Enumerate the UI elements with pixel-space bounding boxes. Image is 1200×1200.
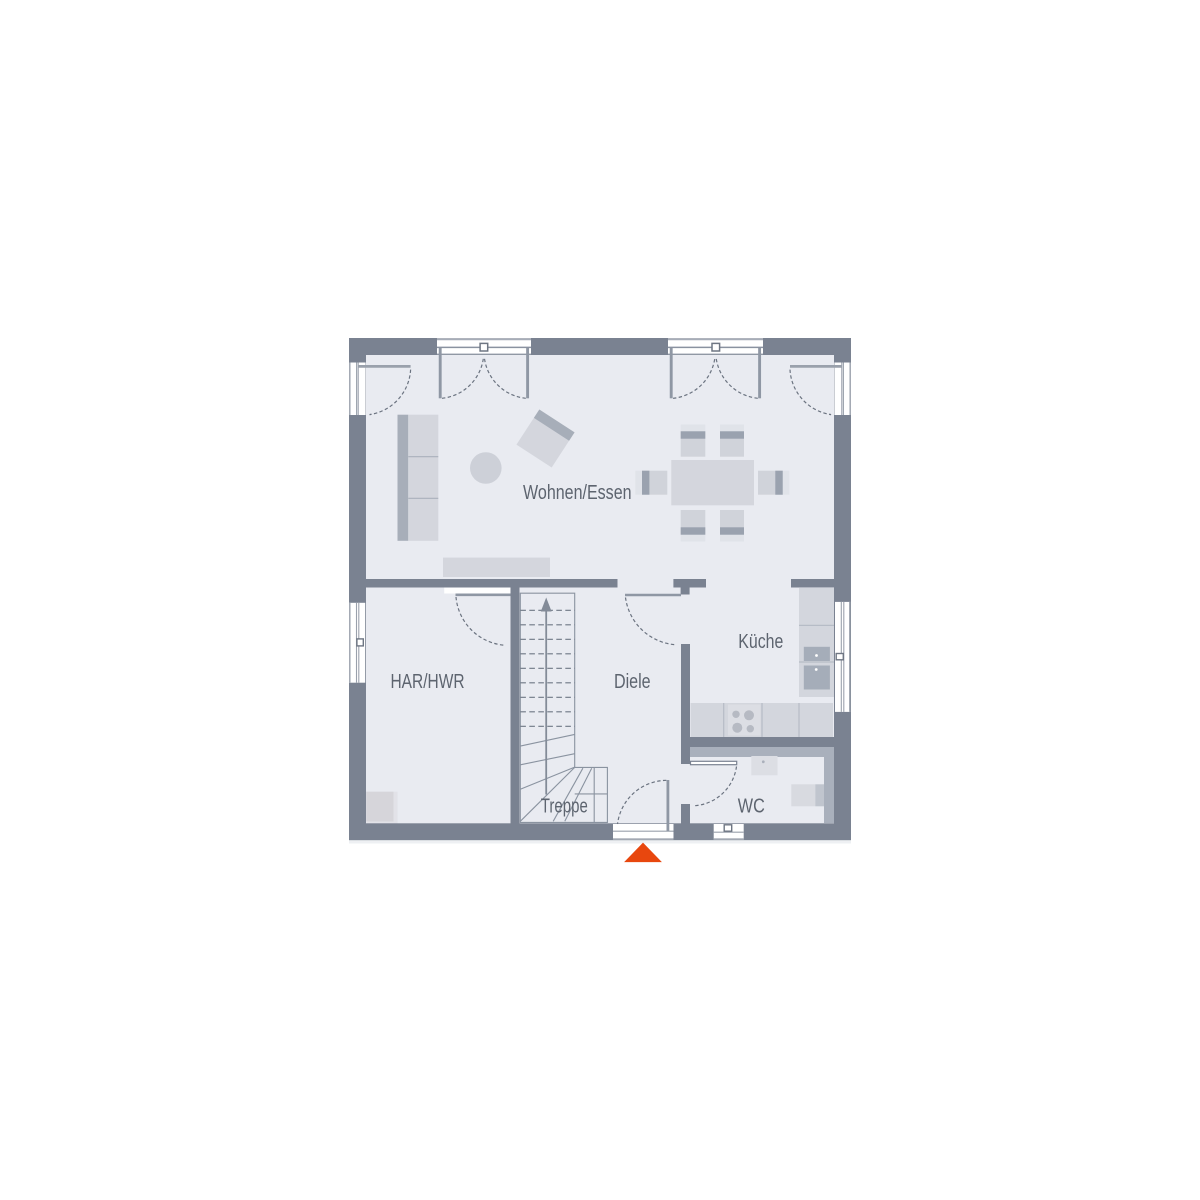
svg-text:Wohnen/Essen: Wohnen/Essen — [523, 482, 632, 504]
svg-text:Diele: Diele — [614, 671, 651, 693]
svg-text:HAR/HWR: HAR/HWR — [391, 671, 465, 693]
svg-text:Treppe: Treppe — [541, 795, 588, 817]
svg-text:Küche: Küche — [738, 631, 783, 653]
svg-text:WC: WC — [738, 796, 765, 818]
